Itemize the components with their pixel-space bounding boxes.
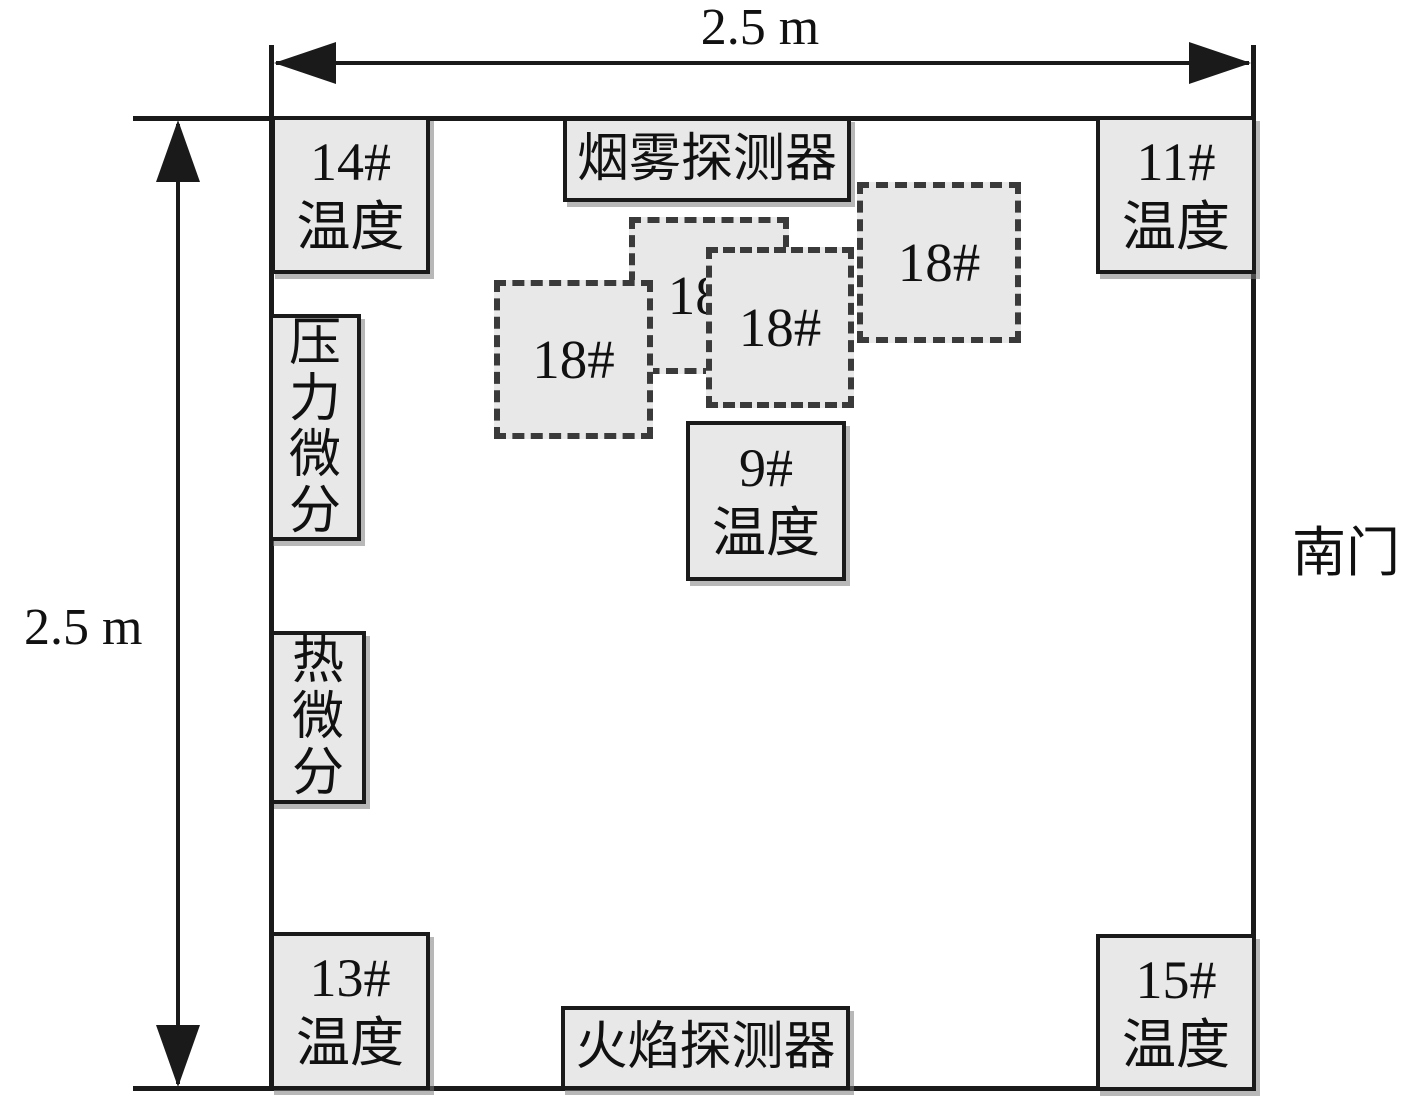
thermocouple-15-box: 15# 温度 [1096, 934, 1256, 1091]
sensor-id: 14# [310, 130, 391, 195]
sensor-id: 13# [310, 946, 391, 1011]
sensor-id: 11# [1137, 130, 1216, 195]
width-dimension-label: 2.5 m [560, 0, 960, 57]
gauge-char: 分 [289, 484, 341, 540]
arrowhead-down-icon [156, 1025, 200, 1087]
smoke-detector-label: 烟雾探测器 [577, 134, 837, 186]
gauge-char: 微 [292, 690, 344, 746]
south-door-label: 南门 [1292, 508, 1400, 587]
sensor-type: 温度 [296, 1011, 404, 1076]
flame-detector-box: 火焰探测器 [561, 1006, 850, 1090]
sensor-type: 温度 [1122, 1013, 1230, 1078]
sample-box-18-left: 18# [494, 280, 653, 439]
thermal-differential-gauge-box: 热 微 分 [270, 631, 366, 804]
height-dimension-label: 2.5 m [24, 598, 142, 657]
experiment-room-layout-diagram: 2.5 m 2.5 m 南门 18# 18# 18# 18# 14# 温度 11… [0, 0, 1417, 1098]
gauge-char: 压 [289, 316, 341, 372]
sample-label: 18# [532, 332, 615, 387]
sample-box-18-right: 18# [857, 182, 1021, 343]
sample-box-18-center: 18# [706, 247, 854, 408]
flame-detector-label: 火焰探测器 [575, 1022, 835, 1074]
gauge-char: 分 [292, 746, 344, 802]
sensor-id: 9# [739, 436, 793, 501]
gauge-char: 微 [289, 428, 341, 484]
sensor-type: 温度 [297, 195, 405, 260]
sensor-type: 温度 [1122, 195, 1230, 260]
thermocouple-11-box: 11# 温度 [1096, 116, 1256, 274]
sample-label: 18# [739, 300, 822, 355]
arrowhead-up-icon [156, 120, 200, 182]
thermocouple-14-box: 14# 温度 [271, 116, 430, 274]
pressure-differential-gauge-box: 压 力 微 分 [269, 314, 361, 541]
thermocouple-13-box: 13# 温度 [270, 932, 430, 1090]
gauge-char: 热 [292, 634, 344, 690]
arrowhead-left-icon [274, 42, 336, 84]
sensor-type: 温度 [712, 501, 820, 566]
thermocouple-9-box: 9# 温度 [686, 421, 846, 581]
gauge-char: 力 [289, 372, 341, 428]
arrowhead-right-icon [1189, 42, 1251, 84]
sample-label: 18# [898, 235, 981, 290]
sensor-id: 15# [1136, 948, 1217, 1013]
smoke-detector-box: 烟雾探测器 [563, 117, 851, 202]
